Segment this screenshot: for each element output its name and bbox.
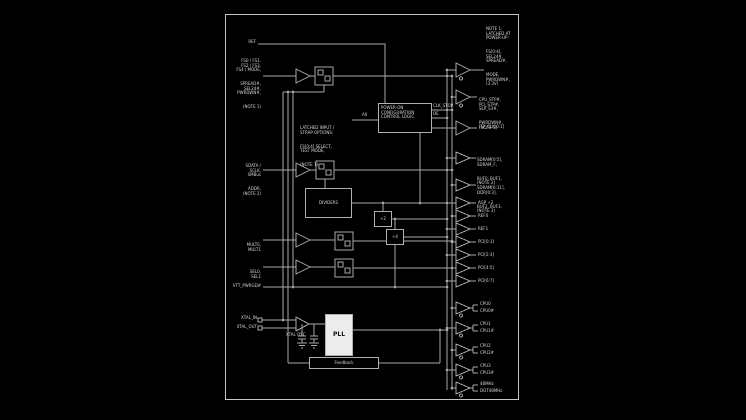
control-out-oe-label: OE: [433, 112, 439, 117]
output-label-ref1: REF1: [478, 227, 488, 232]
output-label-48mhz: 48MHz: [480, 382, 494, 387]
control-left-note: LATCHED INPUT /STRAP OPTIONS: FS[0:4] SE…: [300, 117, 352, 177]
xtal-in-label: XTAL_IN: [225, 316, 257, 321]
output-label-pci01: PCI[0:1]: [478, 240, 494, 245]
output-label-cpu3: CPU3: [480, 364, 491, 369]
control-out-clkstop-label: CLK_STOP: [433, 104, 453, 109]
div4-block: ÷4: [386, 229, 404, 245]
output-label-pci67: PCI[6:7]: [478, 279, 494, 284]
output-label-stop-group: CPU_STP#,PCI_STP#,SLP_S3#, PWRDWN#,(NOTE…: [479, 89, 519, 140]
output-label-pci45: PCI[4:5]: [478, 266, 494, 271]
output-label-pci23: PCI[2:3]: [478, 253, 494, 258]
dividers-block: DIVIDERS: [305, 188, 352, 218]
input-label-smbus-group: SDATA /SCLK,SMBus ADDR,(NOTE 2): [225, 155, 261, 206]
xtal-osc-label: XTAL OSC: [286, 333, 306, 338]
output-label-dot48mhz: DOT48MHz: [480, 389, 502, 394]
output-label-ref0: REF0: [478, 214, 488, 219]
output-note-top-right: NOTE 1:LATCHED ATPOWER-UP: FS[0:4],SEL24…: [486, 18, 522, 96]
output-label-cpu0n: CPU0#: [480, 309, 494, 314]
block-diagram: REF FS0 / FS1,FS2 / FS3,FS4 / MODE, SPRE…: [0, 0, 746, 420]
ref-input-label: REF: [225, 40, 256, 45]
output-label-cpu0: CPU0: [480, 302, 491, 307]
output-label-itp: ITP_CLK[0:1]: [479, 125, 504, 130]
div2-block: ÷2: [374, 211, 392, 227]
output-label-agp: AGP ÷2: [478, 201, 493, 206]
output-label-cpu1: CPU1: [480, 322, 491, 327]
xtal-out-label: XTAL_OUT: [225, 325, 257, 330]
control-logic-block: POWER-ON CONFIGURATION CONTROL LOGIC: [378, 103, 432, 133]
pll-block: PLL: [325, 314, 353, 356]
input-label-vtt-pwrgd: VTT_PWRGD#: [225, 284, 261, 289]
input-label-fs-group: FS0 / FS1,FS2 / FS3,FS4 / MODE, SPREAD#,…: [225, 50, 261, 119]
feedback-block: Feedback: [309, 357, 379, 369]
output-label-cpu2n: CPU2#: [480, 351, 494, 356]
output-label-cpu1n: CPU1#: [480, 329, 494, 334]
output-label-cpu3n: CPU3#: [480, 371, 494, 376]
output-label-cpu2: CPU2: [480, 344, 491, 349]
input-label-mult: MULT0,MULT1: [225, 234, 261, 262]
control-a0-pin-label: A0: [362, 113, 367, 118]
